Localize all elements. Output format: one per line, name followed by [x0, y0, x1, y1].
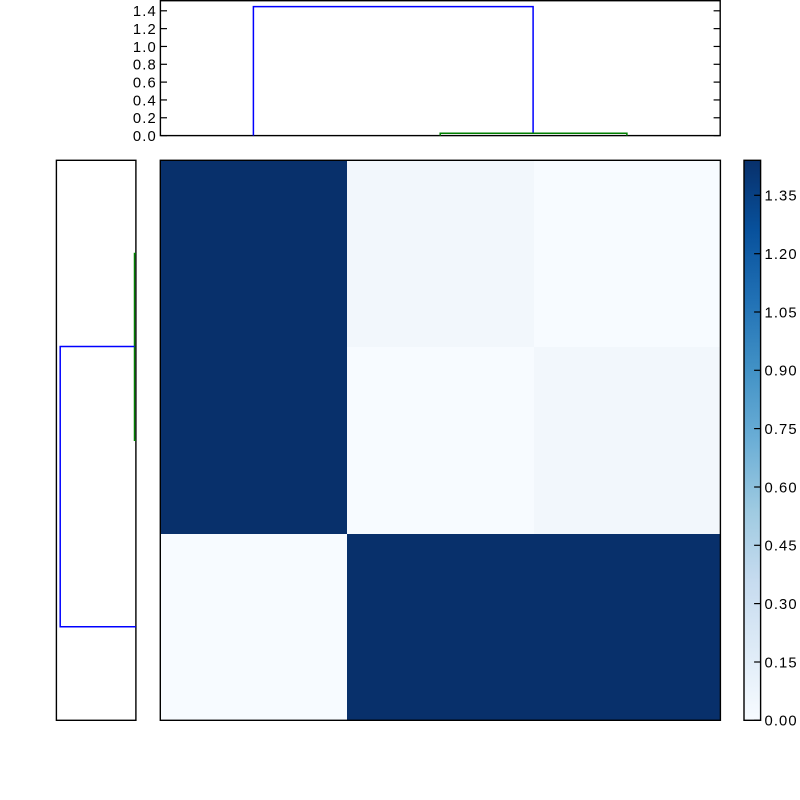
svg-text:1.4: 1.4	[133, 4, 157, 20]
svg-text:0.60: 0.60	[765, 480, 798, 496]
svg-text:0.6: 0.6	[133, 75, 157, 91]
svg-text:0.4: 0.4	[133, 93, 157, 109]
svg-text:1.20: 1.20	[765, 247, 798, 263]
svg-text:1.0: 1.0	[133, 40, 157, 56]
svg-text:0.2: 0.2	[133, 111, 157, 127]
svg-text:0.00: 0.00	[765, 714, 798, 730]
svg-text:0.0: 0.0	[133, 129, 157, 145]
svg-text:0.90: 0.90	[765, 364, 798, 380]
svg-text:0.8: 0.8	[133, 58, 157, 74]
svg-text:1.35: 1.35	[765, 189, 798, 205]
svg-text:0.45: 0.45	[765, 539, 798, 555]
svg-text:1.2: 1.2	[133, 22, 157, 38]
svg-text:1.05: 1.05	[765, 305, 798, 321]
svg-text:0.30: 0.30	[765, 597, 798, 613]
svg-text:0.15: 0.15	[765, 655, 798, 671]
svg-text:0.75: 0.75	[765, 422, 798, 438]
